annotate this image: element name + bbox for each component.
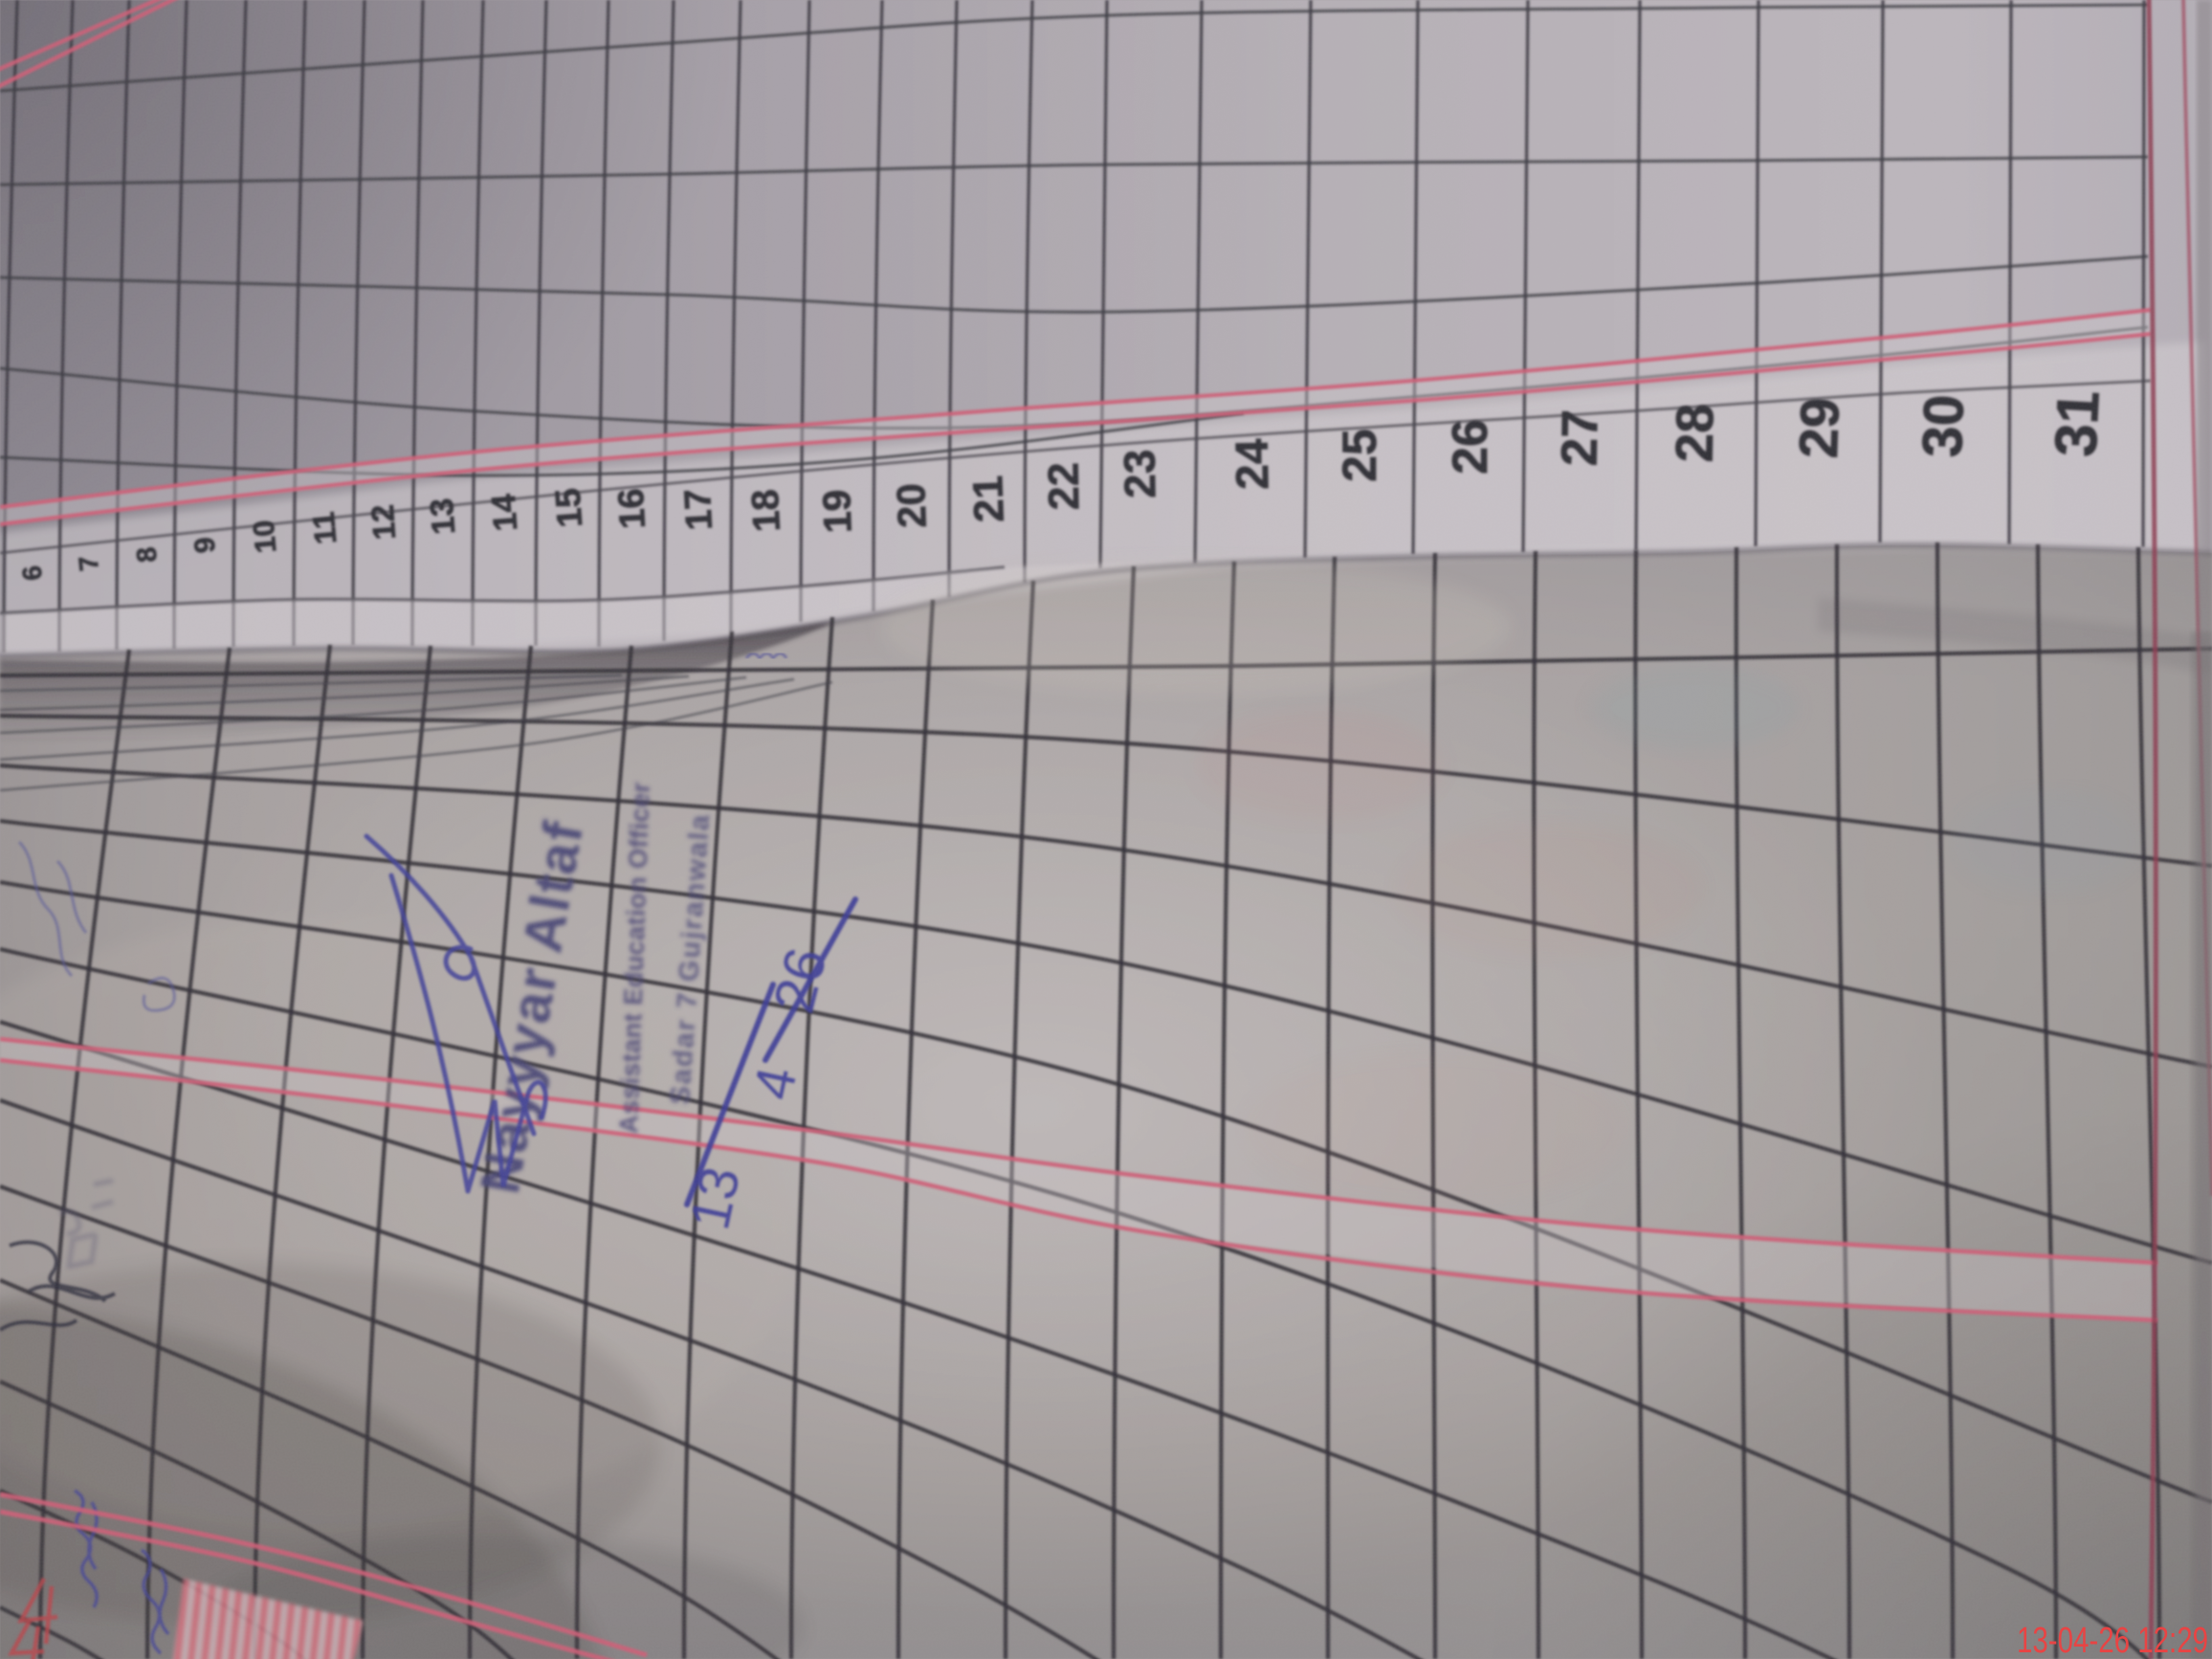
svg-text:13-04-26 12:29: 13-04-26 12:29 — [2017, 1621, 2208, 1659]
